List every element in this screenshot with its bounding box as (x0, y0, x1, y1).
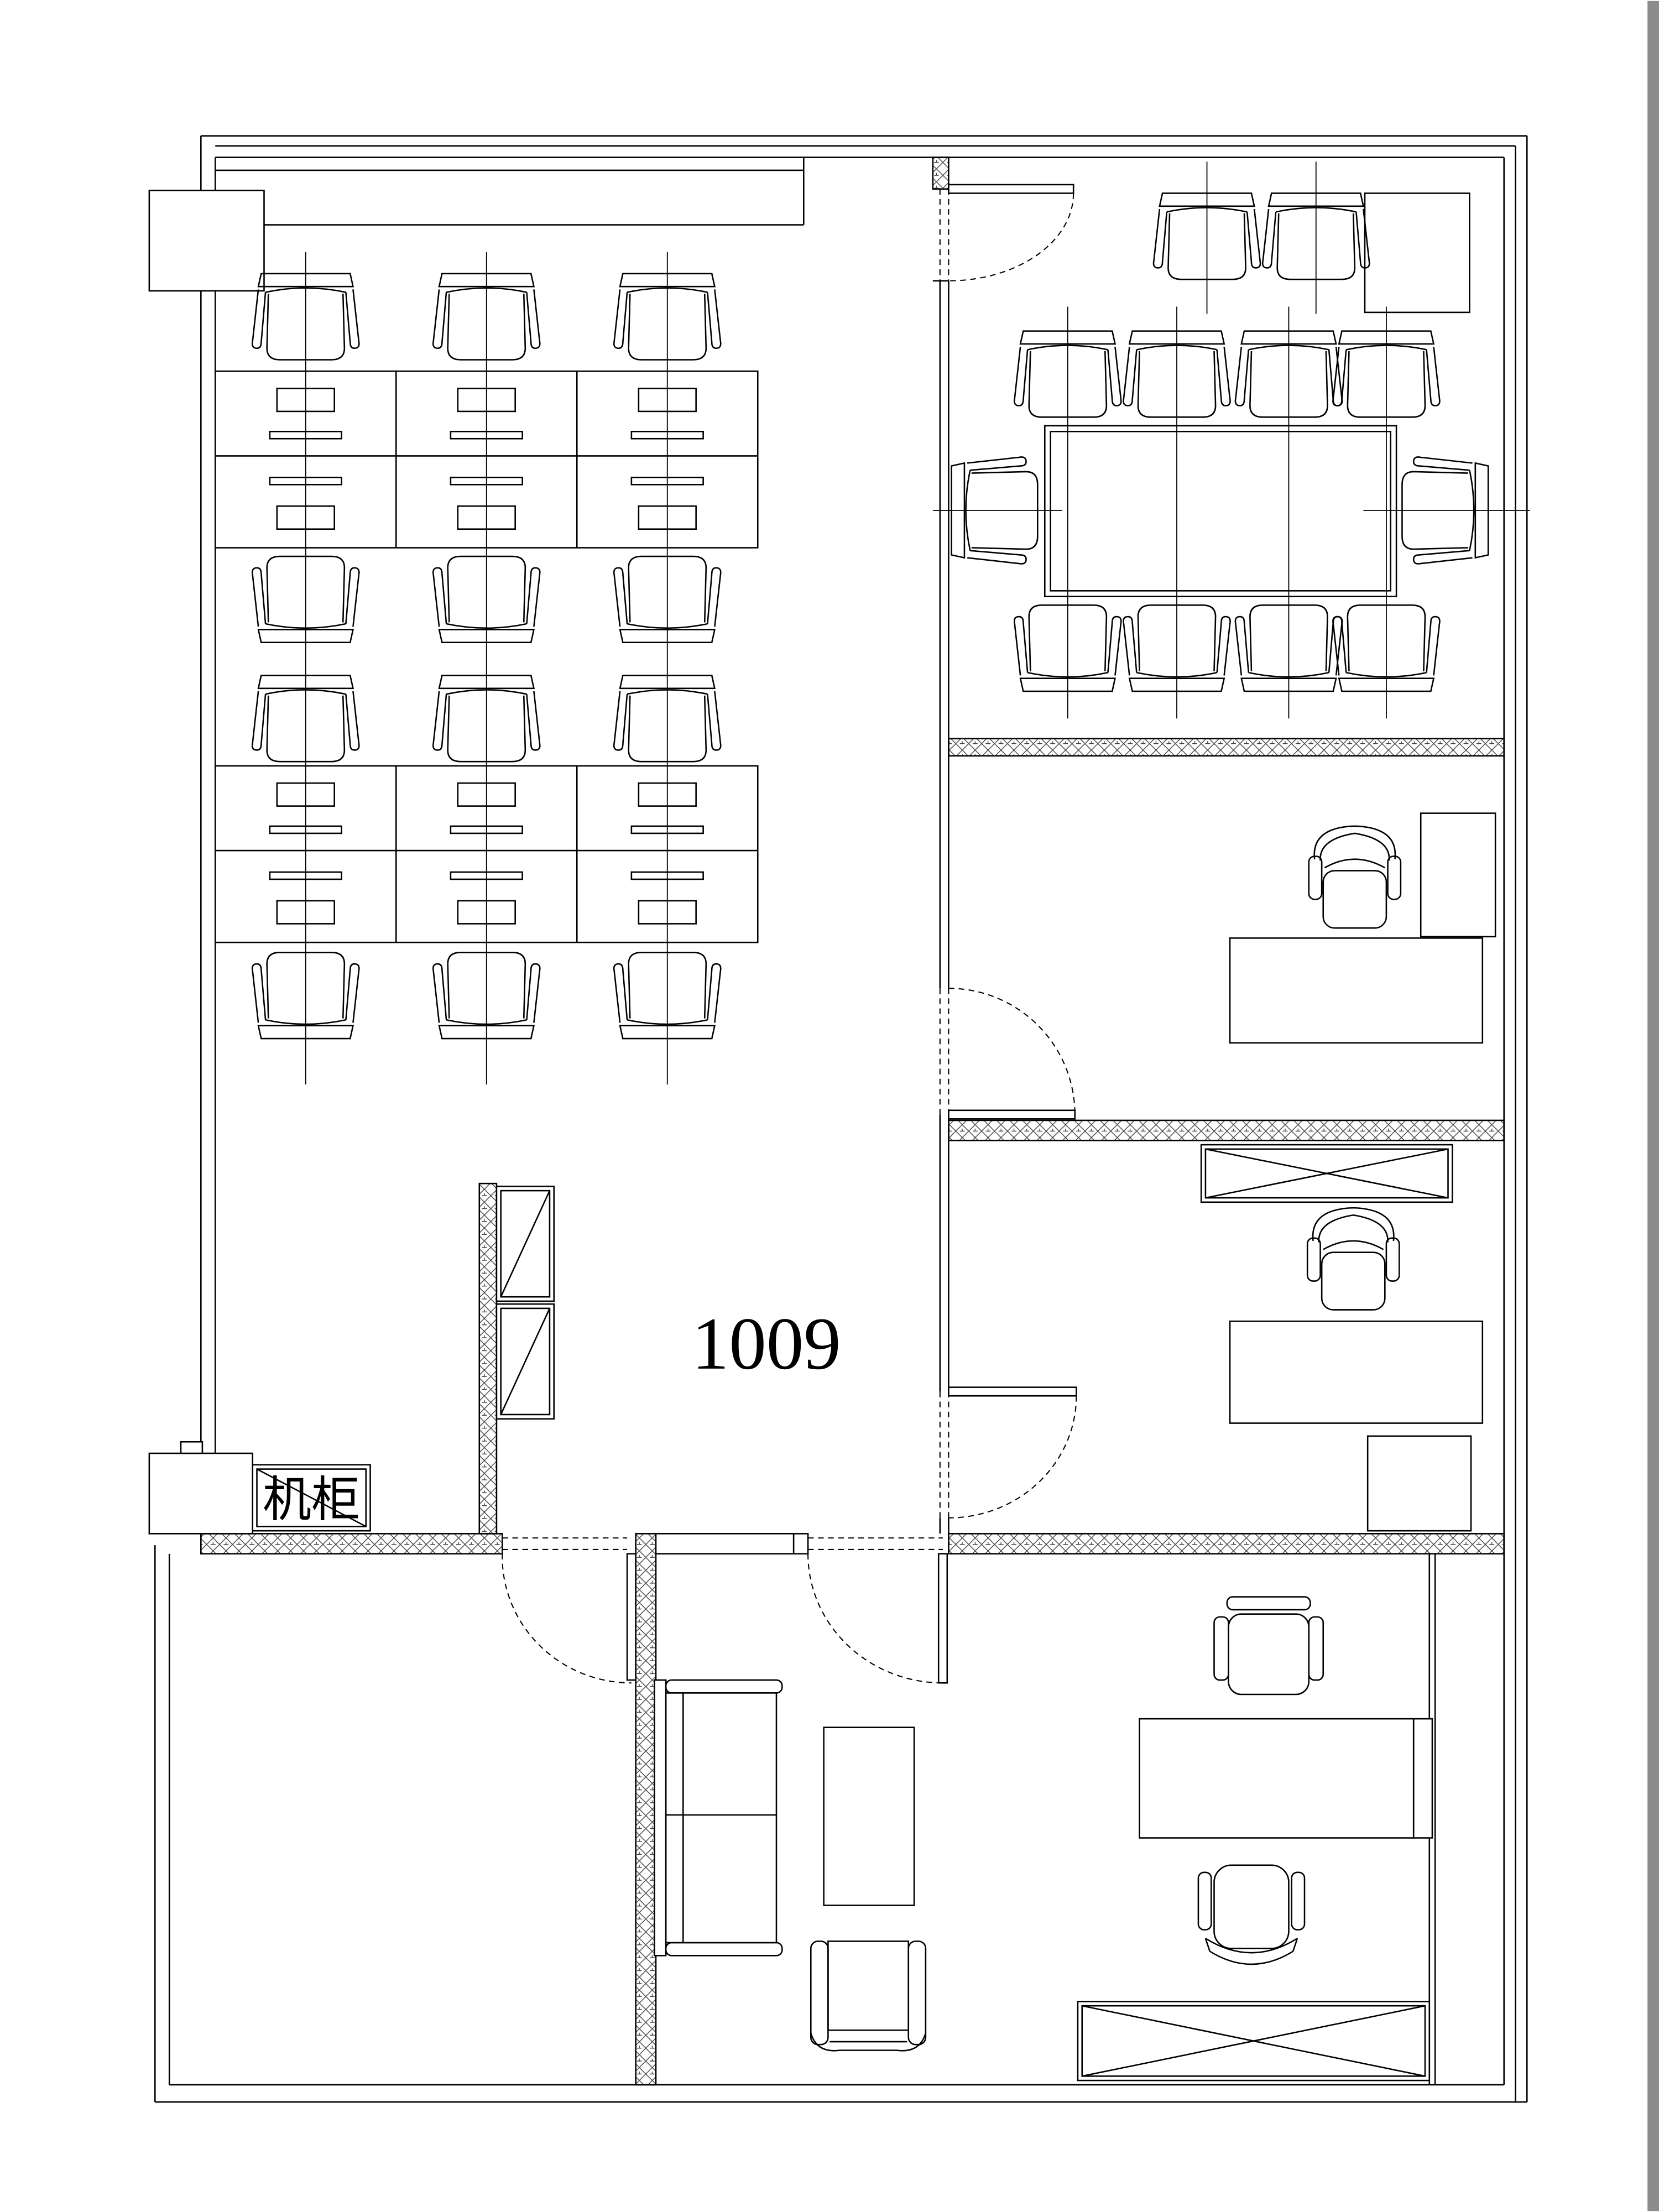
room-bl-door-leaf (627, 1554, 636, 1680)
wall-bottomleft-room-hatched (636, 1533, 656, 2085)
room-bl-door-swing (502, 1554, 632, 1683)
drawing-layer (149, 1, 1659, 2211)
wall-office1-office2-hatched (948, 1120, 1504, 1140)
conference-door-leaf (948, 185, 1073, 194)
guest-chair (1214, 1597, 1323, 1694)
lounge-armchair (811, 1941, 926, 2051)
manager-desk (1140, 1719, 1414, 1838)
sofa-back (654, 1680, 666, 1955)
conference-cabinet (1365, 193, 1469, 312)
office1-side-cabinet (1421, 813, 1495, 937)
office1-door-swing (948, 988, 1074, 1114)
entry-door-swing (808, 1554, 943, 1683)
cabinet-room-duct-box (149, 1453, 253, 1533)
cabinet-room-duct-notch (181, 1442, 202, 1453)
entry-door-leaf (938, 1554, 947, 1683)
sofa-arm-bottom (666, 1943, 782, 1955)
corridor-wall-left-hatched (201, 1533, 502, 1553)
corridor-door-jamb (794, 1533, 808, 1553)
screen-edge-artifact (1647, 1, 1659, 2211)
corridor-wall-right-hatched (948, 1533, 1504, 1553)
office1-exec-chair (1309, 826, 1401, 928)
server-cabinet-label: 机柜 (263, 1471, 360, 1528)
office2-desk (1230, 1321, 1483, 1423)
floor-plan-canvas: 1009 机柜 (0, 0, 1659, 2212)
office2-exec-chair (1307, 1208, 1399, 1310)
office2-door-leaf (948, 1387, 1076, 1396)
office1-door-leaf (948, 1110, 1074, 1119)
conference-table (1045, 426, 1396, 597)
shelf-wall-hatched (479, 1183, 497, 1533)
partition-stub-hatched (933, 158, 949, 189)
manager-desk-return (1413, 1719, 1432, 1838)
wall-conference-office1-hatched (948, 739, 1504, 756)
conference-door-swing (948, 193, 1073, 280)
office1-desk (1230, 938, 1483, 1042)
office2-door-swing (948, 1396, 1076, 1518)
top-left-duct-box (149, 190, 264, 291)
coffee-table (824, 1728, 914, 1906)
office2-cabinet (1368, 1436, 1471, 1531)
manager-exec-chair (1198, 1865, 1305, 1964)
sofa-arm-top (666, 1680, 782, 1693)
room-number-label: 1009 (692, 1303, 841, 1385)
